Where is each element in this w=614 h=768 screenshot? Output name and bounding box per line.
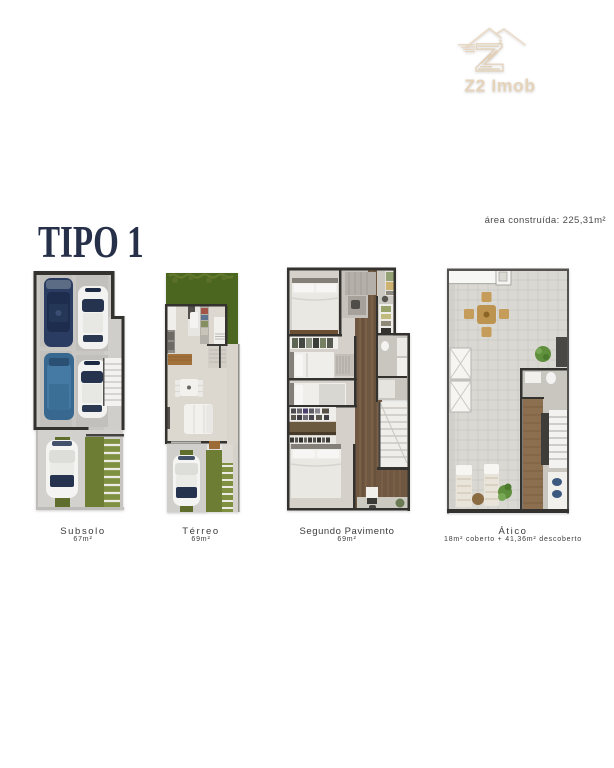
svg-text:2: 2: [499, 39, 503, 46]
svg-text:Z2 Imob: Z2 Imob: [464, 76, 535, 96]
